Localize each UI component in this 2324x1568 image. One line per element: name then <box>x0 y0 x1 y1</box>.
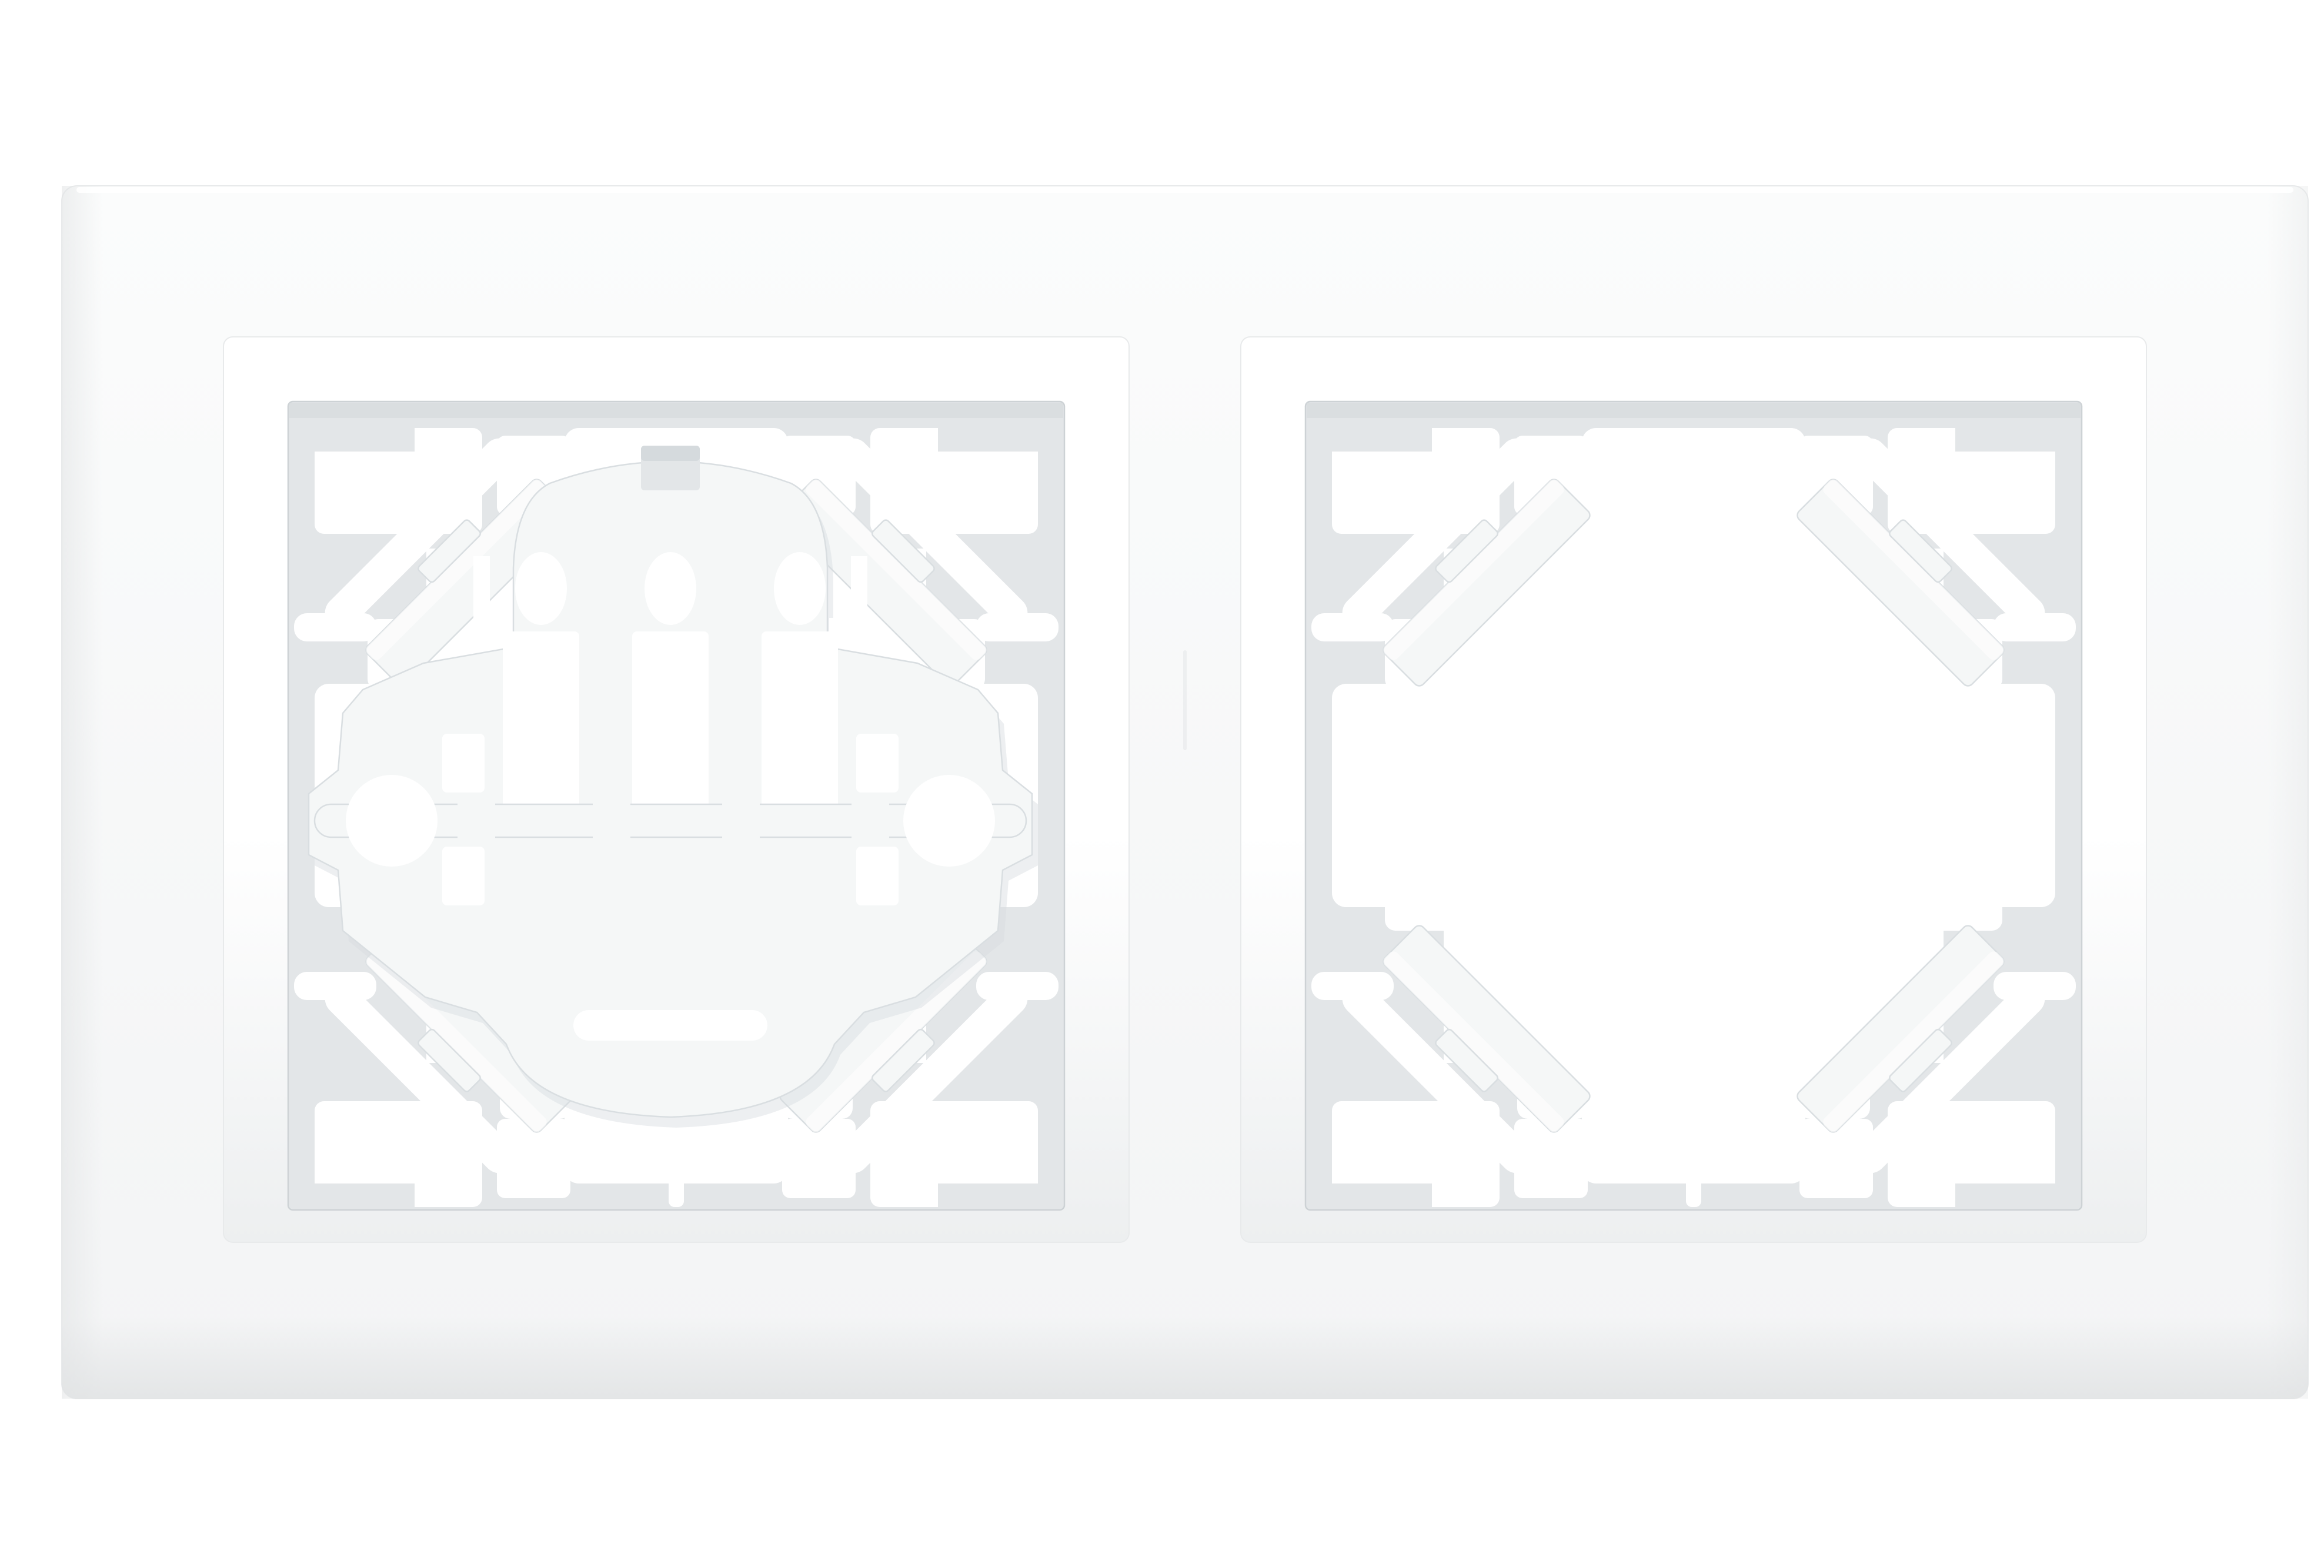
right-aperture <box>1241 337 2146 1242</box>
vertical-slots <box>503 631 838 822</box>
product-photo: Studio product photo on a white backgrou… <box>24 9 2324 1559</box>
bottom-slot <box>573 1010 767 1041</box>
top-notch <box>641 446 700 490</box>
screw-hole-right <box>903 775 995 867</box>
screw-hole-left <box>346 775 438 867</box>
scene-canvas <box>24 9 2324 1559</box>
